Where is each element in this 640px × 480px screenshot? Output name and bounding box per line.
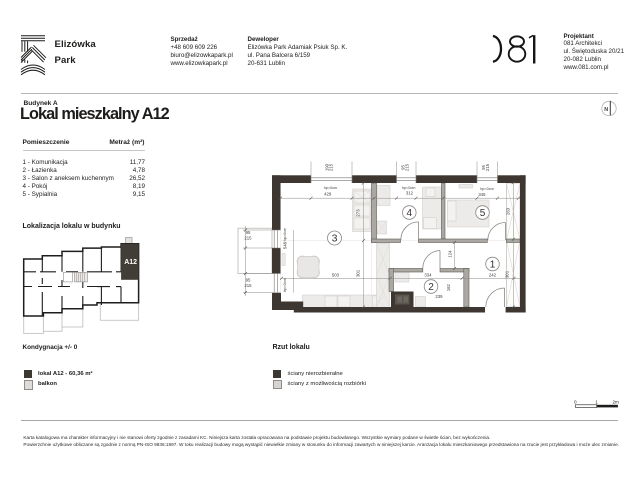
svg-text:162: 162 — [446, 284, 451, 292]
svg-text:301: 301 — [504, 270, 509, 278]
svg-text:124: 124 — [448, 250, 453, 258]
svg-text:215: 215 — [404, 163, 409, 171]
svg-text:273: 273 — [356, 209, 361, 217]
svg-text:239: 239 — [435, 294, 443, 299]
svg-text:215: 215 — [328, 163, 333, 171]
svg-text:2m: 2m — [613, 399, 620, 404]
svg-text:345: 345 — [478, 192, 486, 197]
svg-text:548: 548 — [283, 241, 288, 249]
svg-text:301: 301 — [356, 269, 361, 277]
svg-text:5: 5 — [480, 208, 486, 219]
svg-text:N: N — [604, 107, 608, 113]
svg-text:hp=0cm: hp=0cm — [480, 187, 494, 191]
svg-text:hp=0cm: hp=0cm — [283, 278, 287, 292]
svg-text:429: 429 — [324, 191, 332, 196]
svg-text:263: 263 — [505, 207, 510, 215]
svg-text:1: 1 — [595, 399, 598, 404]
svg-text:215: 215 — [244, 283, 252, 288]
svg-text:312: 312 — [406, 191, 414, 196]
svg-text:215: 215 — [244, 236, 252, 241]
svg-text:4: 4 — [407, 208, 413, 219]
svg-text:hp=0cm: hp=0cm — [402, 186, 416, 190]
svg-text:2: 2 — [428, 282, 434, 293]
svg-text:334: 334 — [424, 272, 432, 277]
svg-text:503: 503 — [332, 272, 340, 277]
svg-text:95: 95 — [246, 278, 251, 283]
svg-text:hp=0cm: hp=0cm — [324, 186, 338, 190]
svg-text:242: 242 — [489, 272, 497, 277]
svg-text:1: 1 — [490, 260, 496, 271]
svg-text:hp=0cm: hp=0cm — [283, 228, 287, 242]
svg-text:95: 95 — [246, 230, 251, 235]
svg-text:A12: A12 — [124, 259, 137, 266]
svg-text:215: 215 — [485, 163, 490, 171]
svg-text:0: 0 — [574, 399, 577, 404]
svg-text:3: 3 — [332, 233, 338, 245]
